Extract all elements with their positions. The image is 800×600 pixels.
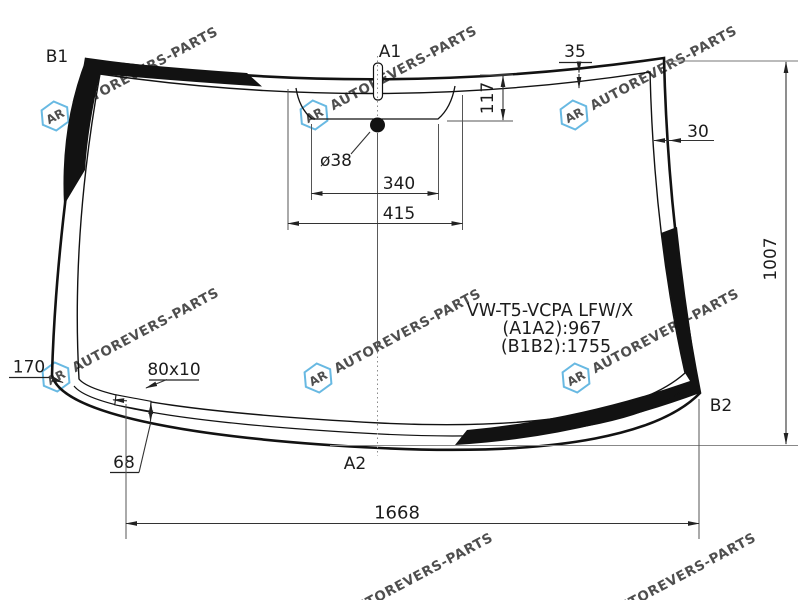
dim-sensor: ø38 (320, 132, 370, 171)
dim-side-edge-value: 30 (687, 122, 709, 142)
label-b2: B2 (710, 396, 732, 416)
dim-side-edge: 30 (654, 122, 714, 142)
part-info: VW-T5-VCPA LFW/X (A1A2):967 (B1B2):1755 (467, 301, 634, 357)
dim-mount-inner-value: 340 (383, 174, 415, 194)
windshield-outline (52, 58, 700, 450)
top-slot (374, 63, 383, 100)
dim-sensor-value: ø38 (320, 151, 352, 171)
dim-mount-depth-value: 117 (478, 82, 498, 114)
windshield-diagram-page: AR AUTOREVERS-PARTS (0, 0, 800, 600)
label-a2: A2 (344, 454, 366, 474)
spec-b1b2: (B1B2):1755 (501, 337, 611, 357)
dim-mount-outer-value: 415 (383, 204, 415, 224)
spec-a1a2: (A1A2):967 (502, 319, 601, 339)
frit-band-top-left (63, 59, 262, 205)
outer-edge (52, 58, 700, 450)
windshield-diagram: AR AUTOREVERS-PARTS (0, 0, 800, 600)
dim-moulding-value: 80x10 (147, 360, 200, 380)
dim-mount-depth: 117 (447, 75, 513, 121)
dim-moulding: 80x10 (113, 360, 201, 401)
label-a1: A1 (379, 42, 401, 62)
label-b1: B1 (46, 47, 68, 67)
dim-width-value: 1668 (374, 503, 420, 524)
dim-corner-offset-value: 170 (13, 358, 45, 378)
part-code: VW-T5-VCPA LFW/X (467, 301, 634, 321)
sensor-dot (370, 118, 385, 133)
dim-top-edge-value: 35 (564, 42, 586, 62)
dim-height-value: 1007 (761, 237, 781, 280)
dim-moulding-inset-value: 68 (113, 453, 135, 473)
